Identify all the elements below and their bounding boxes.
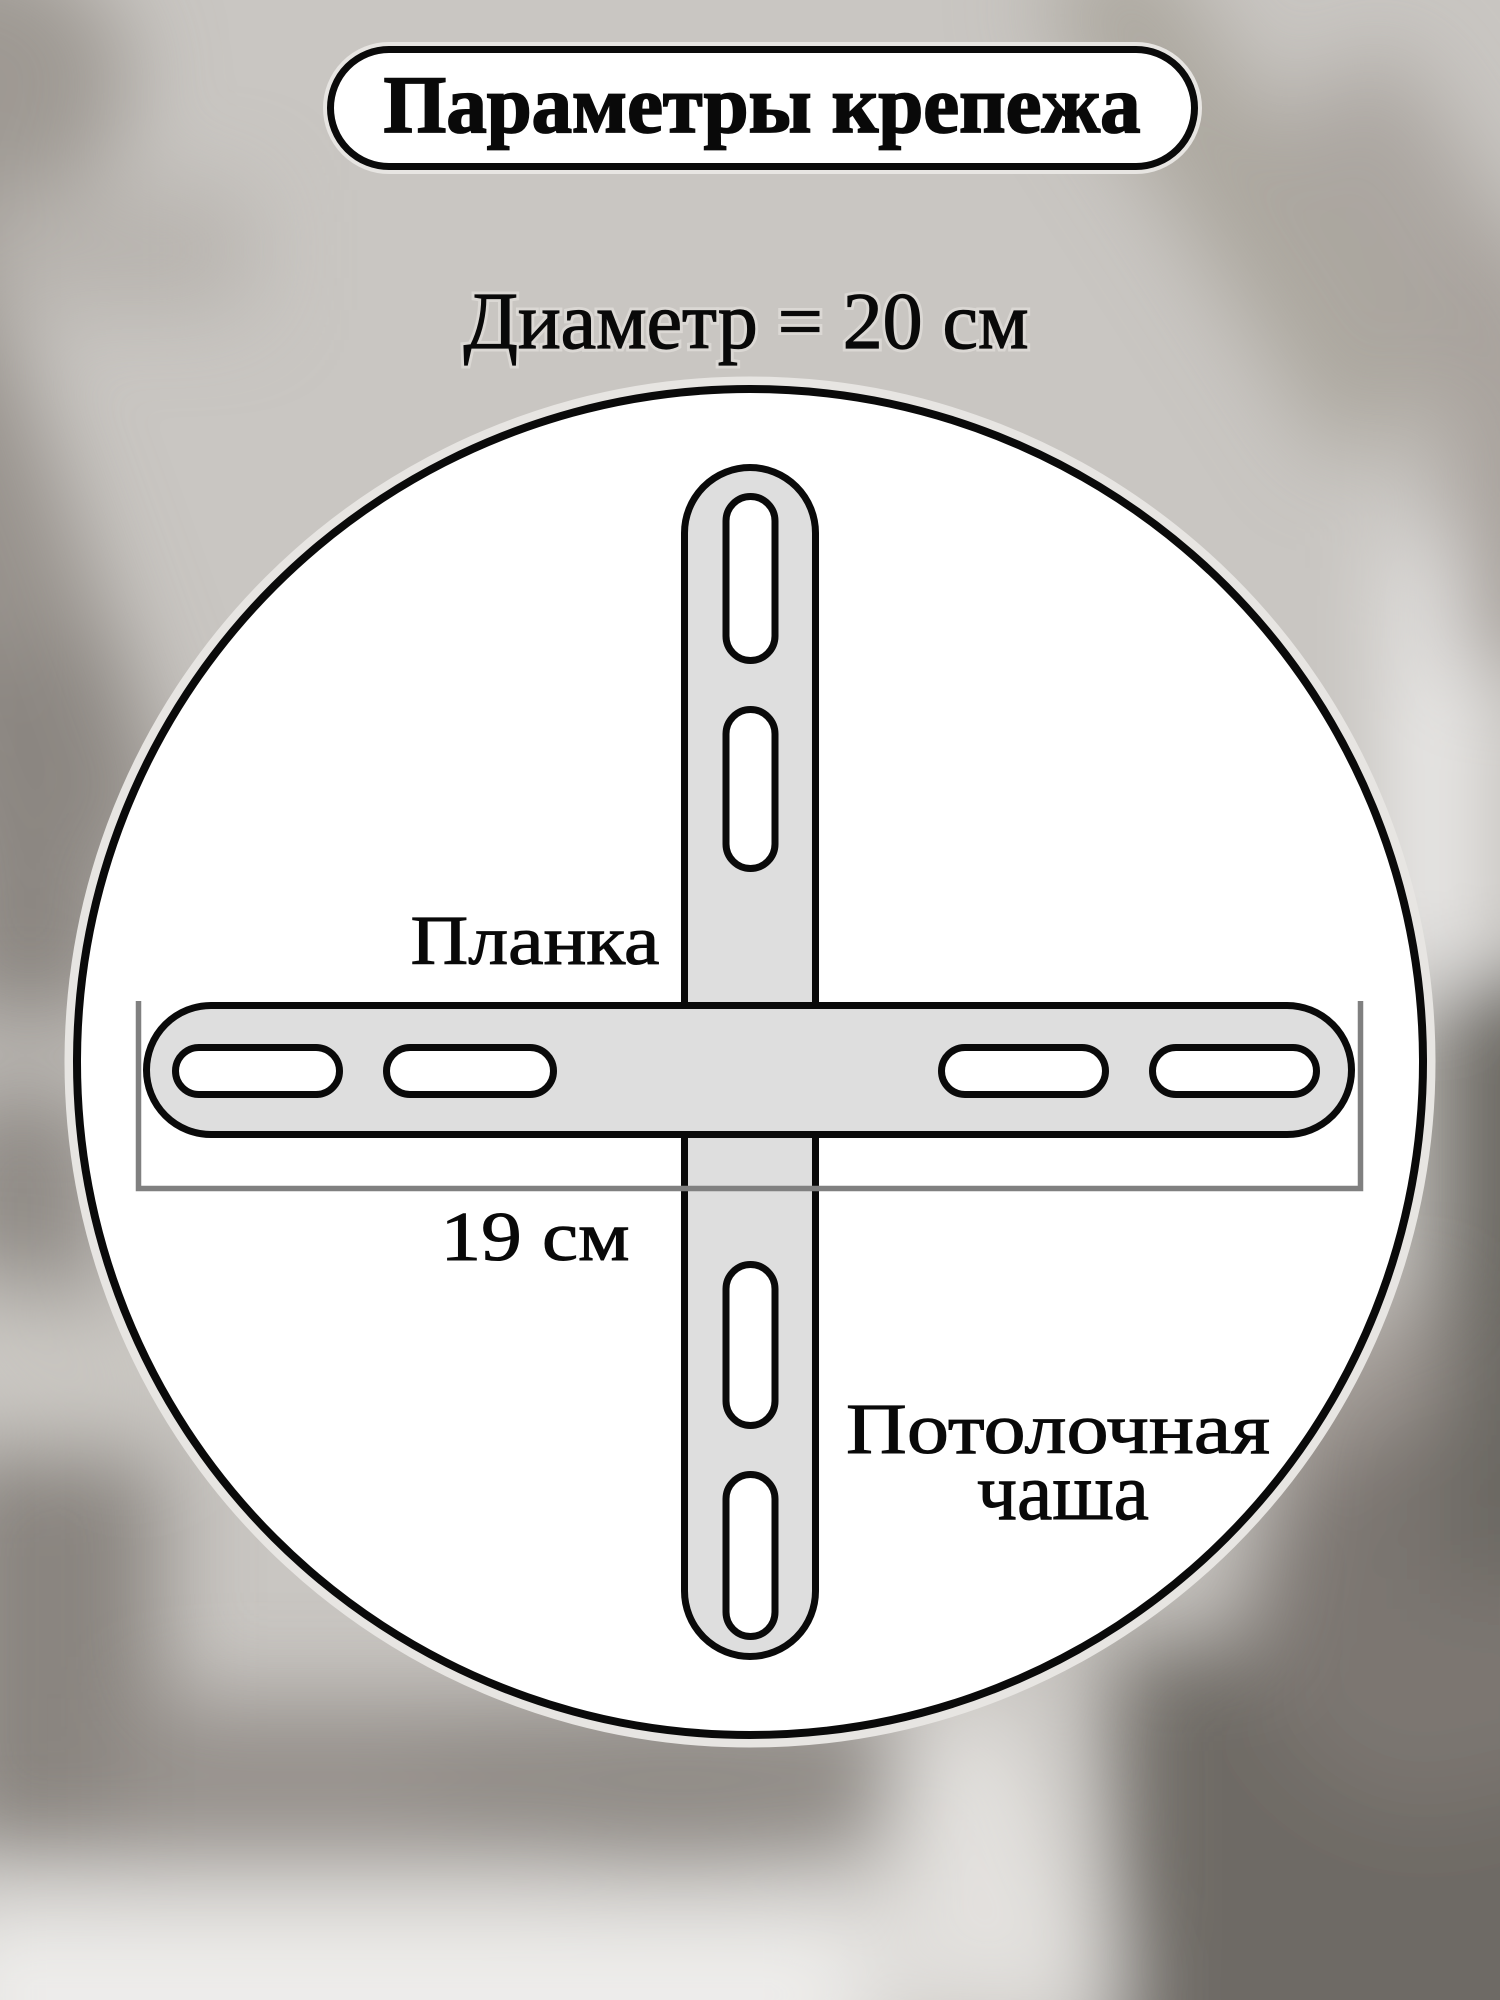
svg-text:чаша: чаша xyxy=(977,1446,1149,1537)
svg-text:Диаметр = 20 см: Диаметр = 20 см xyxy=(464,278,1029,366)
svg-text:Параметры крепежа: Параметры крепежа xyxy=(384,59,1141,150)
svg-text:Планка: Планка xyxy=(411,903,660,980)
svg-text:19 см: 19 см xyxy=(441,1199,630,1276)
